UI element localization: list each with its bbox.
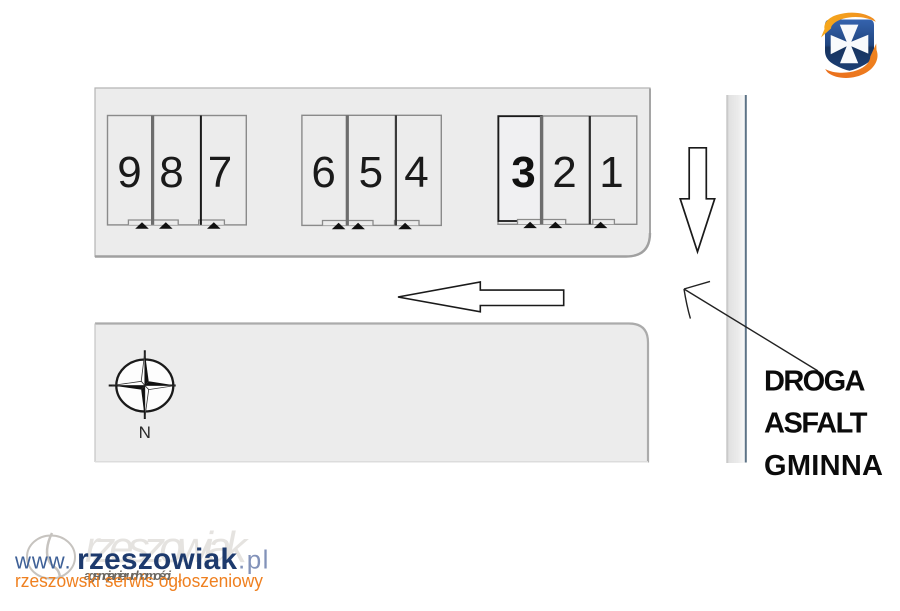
svg-text:3: 3 [511, 148, 535, 197]
svg-text:GMINNA: GMINNA [764, 450, 883, 482]
svg-text:rzeszowski serwis ogłoszeniowy: rzeszowski serwis ogłoszeniowy [15, 570, 264, 591]
svg-text:8: 8 [159, 148, 183, 197]
svg-text:5: 5 [359, 148, 383, 197]
svg-text:DROGA: DROGA [764, 365, 866, 397]
svg-text:9: 9 [117, 148, 141, 197]
svg-text:N: N [139, 423, 151, 442]
svg-text:4: 4 [404, 148, 428, 197]
svg-text:ASFALT: ASFALT [764, 408, 868, 440]
svg-text:6: 6 [311, 148, 335, 197]
svg-text:7: 7 [208, 148, 232, 197]
svg-text:2: 2 [552, 148, 576, 197]
svg-text:1: 1 [599, 148, 623, 197]
